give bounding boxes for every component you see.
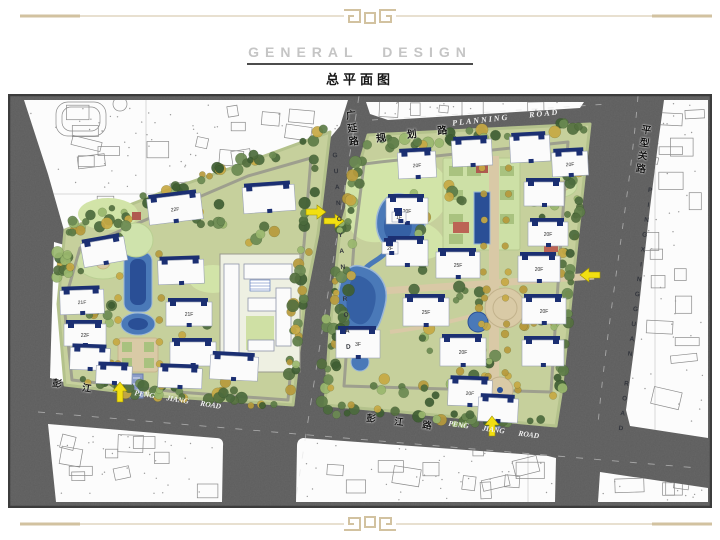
residential-building xyxy=(242,180,296,215)
tree xyxy=(569,230,579,240)
floor-label: 25F xyxy=(422,310,431,316)
tree xyxy=(115,316,122,323)
tree xyxy=(346,169,358,181)
tree xyxy=(69,229,77,237)
cadastral-dot xyxy=(151,139,152,140)
cadastral-dot xyxy=(691,132,692,133)
tree xyxy=(206,173,212,179)
cadastral-dot xyxy=(702,375,703,376)
cadastral-dot xyxy=(108,182,109,183)
tree xyxy=(120,220,131,231)
tree xyxy=(418,411,425,418)
tree xyxy=(514,382,521,389)
tree xyxy=(108,302,115,309)
cadastral-dot xyxy=(644,275,645,276)
cadastral-dot xyxy=(650,373,651,374)
cadastral-dot xyxy=(673,115,674,116)
cadastral-dot xyxy=(153,493,154,494)
presentation-slide: GENERAL DESIGN 总平面图 xyxy=(0,0,720,540)
cadastral-dot xyxy=(430,106,431,107)
cadastral-dot xyxy=(127,436,128,437)
residential-building xyxy=(158,363,203,390)
cadastral-dot xyxy=(556,102,557,103)
residential-building xyxy=(157,255,204,286)
cadastral-dot xyxy=(686,369,687,370)
floor-label: 21F xyxy=(78,300,87,306)
tree xyxy=(427,348,433,354)
cadastral-dot xyxy=(127,155,128,156)
cadastral-dot xyxy=(443,456,444,457)
tree xyxy=(345,195,356,206)
top-border-ornament xyxy=(0,0,720,34)
tree xyxy=(501,330,509,338)
cadastral-dot xyxy=(512,463,513,464)
tree xyxy=(558,365,569,376)
title-divider xyxy=(247,63,473,65)
tree xyxy=(564,271,574,281)
tree xyxy=(458,196,467,205)
tree xyxy=(379,136,386,143)
tree xyxy=(374,406,381,413)
cadastral-dot xyxy=(104,186,105,187)
cadastral-dot xyxy=(148,146,149,147)
cadastral-dot xyxy=(701,490,702,491)
cadastral-dot xyxy=(101,130,102,131)
tree xyxy=(63,250,72,259)
tree xyxy=(316,396,328,408)
tree xyxy=(109,205,115,211)
cadastral-dot xyxy=(317,443,318,444)
tree xyxy=(445,192,454,201)
tree xyxy=(562,288,573,299)
tree xyxy=(575,123,583,131)
sports-court xyxy=(453,222,469,233)
master-plan-drawing: 22F21F22F21F20F20F20F20F25F20F25F20F20F2… xyxy=(8,94,712,508)
cadastral-dot xyxy=(217,126,218,127)
tree xyxy=(370,382,377,389)
tree xyxy=(155,250,162,257)
cadastral-dot xyxy=(67,445,68,446)
tree xyxy=(413,138,422,147)
cadastral-dot xyxy=(395,113,396,114)
cadastral-dot xyxy=(694,171,695,172)
tree xyxy=(348,207,355,214)
tree xyxy=(481,217,488,224)
cadastral-dot xyxy=(104,472,105,473)
cadastral-dot xyxy=(677,490,678,491)
cadastral-dot xyxy=(129,447,130,448)
tree xyxy=(232,164,244,176)
cadastral-dot xyxy=(660,287,661,288)
cadastral-dot xyxy=(129,108,130,109)
tree xyxy=(292,361,300,369)
cadastral-dot xyxy=(89,493,90,494)
cadastral-dot xyxy=(484,453,485,454)
tree xyxy=(332,362,342,372)
cadastral-dot xyxy=(199,491,200,492)
cadastral-dot xyxy=(55,127,56,128)
tree xyxy=(537,415,545,423)
cadastral-dot xyxy=(75,182,76,183)
tree xyxy=(478,321,485,328)
cadastral-dot xyxy=(162,492,163,493)
cadastral-dot xyxy=(405,449,406,450)
tree xyxy=(435,138,444,147)
tree xyxy=(310,187,320,197)
cadastral-dot xyxy=(673,336,674,337)
tree xyxy=(558,383,568,393)
tree xyxy=(269,152,276,159)
cadastral-dot xyxy=(502,471,503,472)
cadastral-dot xyxy=(57,445,58,446)
solar-roof xyxy=(250,280,270,291)
tree xyxy=(76,226,86,236)
tree xyxy=(453,281,465,293)
cadastral-dot xyxy=(165,441,166,442)
cadastral-dot xyxy=(30,113,31,114)
tree xyxy=(248,402,254,408)
cadastral-dot xyxy=(678,211,679,212)
tree xyxy=(519,286,527,294)
cadastral-dot xyxy=(112,453,113,454)
tree xyxy=(179,393,186,400)
cadastral-dot xyxy=(675,300,676,301)
school-buildings xyxy=(224,264,292,354)
residential-building: 22F xyxy=(64,320,106,347)
cadastral-dot xyxy=(124,142,125,143)
cadastral-dot xyxy=(671,324,672,325)
cadastral-dot xyxy=(416,476,417,477)
cadastral-dot xyxy=(656,219,657,220)
tree xyxy=(116,272,123,279)
tree xyxy=(98,208,107,217)
floor-label: 20F xyxy=(544,232,553,238)
cadastral-dot xyxy=(396,103,397,104)
page-title-en: GENERAL DESIGN xyxy=(0,44,720,60)
tree xyxy=(502,243,509,250)
cadastral-dot xyxy=(144,473,145,474)
cadastral-dot xyxy=(700,322,701,323)
residential-building xyxy=(509,131,551,164)
residential-building xyxy=(96,361,133,385)
cadastral-dot xyxy=(334,128,335,129)
tree xyxy=(421,385,428,392)
tree xyxy=(290,273,301,284)
tree xyxy=(475,304,483,312)
floor-label: 22F xyxy=(170,206,179,213)
tree xyxy=(503,217,510,224)
floor-label: 20F xyxy=(413,163,422,169)
tree xyxy=(230,387,238,395)
cadastral-dot xyxy=(460,481,461,482)
cadastral-dot xyxy=(540,463,541,464)
tree xyxy=(483,286,491,294)
cadastral-dot xyxy=(458,472,459,473)
cadastral-dot xyxy=(399,448,400,449)
cadastral-dot xyxy=(641,339,642,340)
floor-label: 25F xyxy=(454,263,463,269)
cadastral-dot xyxy=(663,123,664,124)
cadastral-dot xyxy=(619,486,620,487)
tree xyxy=(285,385,295,395)
fan-pool-deep xyxy=(128,318,148,330)
cadastral-dot xyxy=(154,122,155,123)
cadastral-dot xyxy=(669,213,670,214)
floor-label: 3F xyxy=(355,342,361,348)
cadastral-dot xyxy=(684,134,685,135)
tree xyxy=(337,227,343,233)
cadastral-dot xyxy=(603,493,604,494)
tree xyxy=(425,398,434,407)
title-block: GENERAL DESIGN 总平面图 xyxy=(0,44,720,88)
cadastral-dot xyxy=(453,106,454,107)
cadastral-dot xyxy=(214,127,215,128)
tree xyxy=(291,325,301,335)
cadastral-dot xyxy=(446,498,447,499)
tree xyxy=(158,294,165,301)
tree xyxy=(259,402,266,409)
page-title-cn: 总平面图 xyxy=(0,69,720,88)
tree xyxy=(66,263,74,271)
cadastral-dot xyxy=(188,478,189,479)
cadastral-dot xyxy=(89,129,90,130)
cadastral-dot xyxy=(195,155,196,156)
tree xyxy=(391,407,400,416)
tree xyxy=(399,133,410,144)
cadastral-dot xyxy=(185,458,186,459)
tree xyxy=(490,130,500,140)
tree xyxy=(501,278,509,286)
tree xyxy=(85,210,95,220)
cadastral-dot xyxy=(127,467,128,468)
bottom-border-ornament xyxy=(0,506,720,540)
cadastral-dot xyxy=(614,481,615,482)
tree xyxy=(433,415,441,423)
tree xyxy=(480,269,487,276)
tree xyxy=(342,284,354,296)
tree xyxy=(330,295,340,305)
tree xyxy=(345,218,352,225)
tree xyxy=(197,176,205,184)
tree xyxy=(502,369,509,376)
cadastral-dot xyxy=(169,165,170,166)
tree xyxy=(505,269,512,276)
residential-building: 25F xyxy=(436,248,480,279)
cadastral-dot xyxy=(170,114,171,115)
cadastral-dot xyxy=(127,186,128,187)
tree xyxy=(571,213,581,223)
tree xyxy=(287,300,299,312)
tree xyxy=(172,184,180,192)
cadastral-dot xyxy=(92,436,93,437)
tree xyxy=(432,392,440,400)
tree xyxy=(564,211,571,218)
cadastral-dot xyxy=(701,400,702,401)
residential-building: 21F xyxy=(59,285,104,316)
cadastral-dot xyxy=(385,112,386,113)
cadastral-dot xyxy=(190,154,191,155)
floor-label: 20F xyxy=(466,391,475,397)
tree xyxy=(549,126,561,138)
cadastral-dot xyxy=(667,173,668,174)
cadastral-dot xyxy=(400,491,401,492)
cadastral-dot xyxy=(470,108,471,109)
cadastral-dot xyxy=(651,248,652,249)
tree xyxy=(178,331,186,339)
west-axis-pool-deep xyxy=(130,259,146,305)
cadastral-dot xyxy=(135,175,136,176)
cadastral-dot xyxy=(117,116,118,117)
tree xyxy=(387,137,399,149)
tree xyxy=(503,321,510,328)
cadastral-dot xyxy=(278,114,279,115)
tree xyxy=(113,338,120,345)
cadastral-dot xyxy=(440,488,441,489)
tree xyxy=(323,374,333,384)
residential-building: 20F xyxy=(518,252,560,283)
tree xyxy=(527,418,533,424)
floor-label: 21F xyxy=(185,312,194,318)
cadastral-dot xyxy=(422,480,423,481)
residential-building: 20F xyxy=(397,147,437,180)
floor-label: 20F xyxy=(566,162,575,168)
cadastral-dot xyxy=(644,388,645,389)
tree xyxy=(344,410,350,416)
cadastral-dot xyxy=(546,492,547,493)
cadastral-dot xyxy=(690,335,691,336)
tree xyxy=(332,411,340,419)
cadastral-dot xyxy=(190,443,191,444)
tree xyxy=(505,165,512,172)
cadastral-dot xyxy=(90,119,91,120)
tree xyxy=(197,220,205,228)
tree xyxy=(451,411,458,418)
tree xyxy=(466,127,473,134)
tree xyxy=(481,295,488,302)
cadastral-dot xyxy=(439,460,440,461)
tree xyxy=(505,191,512,198)
tree xyxy=(101,218,113,230)
tree xyxy=(321,314,330,323)
residential-building: 3F xyxy=(336,326,380,359)
cadastral-dot xyxy=(184,166,185,167)
cadastral-dot xyxy=(692,497,693,498)
cadastral-dot xyxy=(307,496,308,497)
cadastral-dot xyxy=(211,447,212,448)
residential-building: 21F xyxy=(166,298,212,327)
tree xyxy=(68,216,78,226)
cadastral-dot xyxy=(192,125,193,126)
cadastral-dot xyxy=(197,133,198,134)
cadastral-dot xyxy=(435,476,436,477)
cadastral-dot xyxy=(508,471,509,472)
cadastral-dot xyxy=(398,499,399,500)
cadastral-dot xyxy=(306,463,307,464)
tree xyxy=(305,248,312,255)
cadastral-dot xyxy=(443,103,444,104)
cadastral-dot xyxy=(336,125,337,126)
tree xyxy=(156,338,163,345)
tree xyxy=(377,385,386,394)
tree xyxy=(504,347,511,354)
cadastral-dot xyxy=(685,495,686,496)
tree xyxy=(379,374,390,385)
tree xyxy=(338,402,346,410)
cadastral-dot xyxy=(185,165,186,166)
cadastral-dot xyxy=(632,378,633,379)
cadastral-dot xyxy=(335,445,336,446)
cadastral-dot xyxy=(691,420,692,421)
tree xyxy=(218,388,228,398)
tree xyxy=(309,155,319,165)
tree xyxy=(480,191,487,198)
tree xyxy=(452,421,459,428)
cadastral-dot xyxy=(128,147,129,148)
tree xyxy=(349,156,361,168)
residential-building: 20F xyxy=(551,147,588,178)
tree xyxy=(566,249,575,258)
cadastral-dot xyxy=(699,408,700,409)
cadastral-dot xyxy=(104,163,105,164)
cadastral-dot xyxy=(155,460,156,461)
tree xyxy=(311,165,318,172)
cadastral-dot xyxy=(98,122,99,123)
tree xyxy=(217,217,225,225)
residential-building xyxy=(209,351,258,382)
tree xyxy=(486,358,492,364)
cadastral-dot xyxy=(146,134,147,135)
cadastral-dot xyxy=(120,435,121,436)
cadastral-dot xyxy=(79,121,80,122)
tree xyxy=(348,239,357,248)
residential-building xyxy=(170,338,216,367)
cadastral-dot xyxy=(441,479,442,480)
cadastral-dot xyxy=(660,298,661,299)
cadastral-dot xyxy=(61,493,62,494)
tree xyxy=(363,140,372,149)
cadastral-dot xyxy=(468,478,469,479)
cadastral-dot xyxy=(386,484,387,485)
tree xyxy=(466,410,475,419)
tree xyxy=(502,295,509,302)
residential-building xyxy=(524,178,564,207)
tree xyxy=(297,246,304,253)
cadastral-dot xyxy=(92,441,93,442)
cadastral-dot xyxy=(673,103,674,104)
cadastral-dot xyxy=(141,121,142,122)
tree xyxy=(214,199,224,209)
residential-building: 25F xyxy=(403,294,449,327)
tree xyxy=(347,271,356,280)
cadastral-dot xyxy=(694,494,695,495)
tree xyxy=(300,138,307,145)
cadastral-dot xyxy=(648,230,649,231)
cadastral-dot xyxy=(437,107,438,108)
tree xyxy=(271,401,278,408)
tree xyxy=(269,226,280,237)
floor-label: 20F xyxy=(535,267,544,273)
cadastral-dot xyxy=(371,469,372,470)
tree xyxy=(551,324,558,331)
cadastral-dot xyxy=(689,105,690,106)
residential-building: 20F xyxy=(528,218,568,247)
tree xyxy=(292,336,302,346)
tree xyxy=(85,379,92,386)
cadastral-dot xyxy=(171,445,172,446)
tree xyxy=(456,367,464,375)
tree xyxy=(317,359,327,369)
cadastral-dot xyxy=(148,112,149,113)
